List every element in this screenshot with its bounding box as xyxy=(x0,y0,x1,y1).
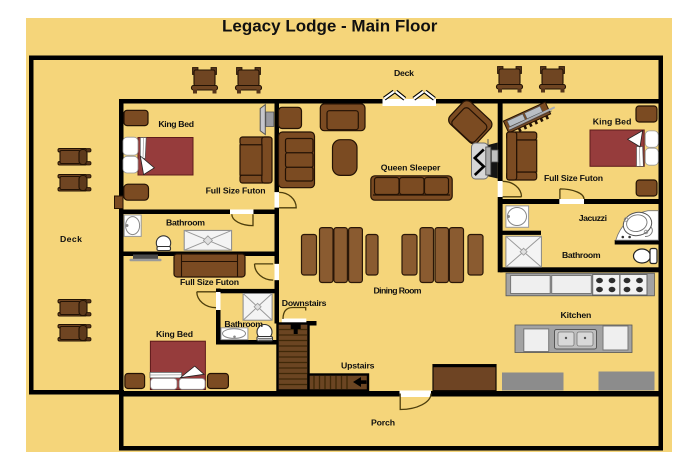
svg-text:Upstairs: Upstairs xyxy=(341,361,375,371)
svg-text:Queen Sleeper: Queen Sleeper xyxy=(381,162,441,172)
svg-text:Bathroom: Bathroom xyxy=(562,250,601,260)
svg-text:King Bed: King Bed xyxy=(158,119,194,129)
svg-text:Full Size Futon: Full Size Futon xyxy=(206,185,266,195)
svg-text:Legacy Lodge - Main Floor: Legacy Lodge - Main Floor xyxy=(222,17,438,36)
svg-text:Bathroom: Bathroom xyxy=(224,319,263,329)
svg-text:King Bed: King Bed xyxy=(156,329,193,339)
svg-text:Deck: Deck xyxy=(60,234,82,244)
svg-text:Porch: Porch xyxy=(371,417,395,427)
svg-text:Kitchen: Kitchen xyxy=(561,310,592,320)
svg-text:Bathroom: Bathroom xyxy=(166,218,205,228)
svg-text:Full Size Futon: Full Size Futon xyxy=(180,277,239,287)
svg-text:Deck: Deck xyxy=(394,68,414,78)
svg-text:Jacuzzi: Jacuzzi xyxy=(579,213,607,223)
svg-text:Downstairs: Downstairs xyxy=(282,298,327,308)
svg-text:Dining Room: Dining Room xyxy=(374,286,422,296)
svg-text:King Bed: King Bed xyxy=(593,117,632,127)
svg-text:Full Size Futon: Full Size Futon xyxy=(544,173,603,183)
